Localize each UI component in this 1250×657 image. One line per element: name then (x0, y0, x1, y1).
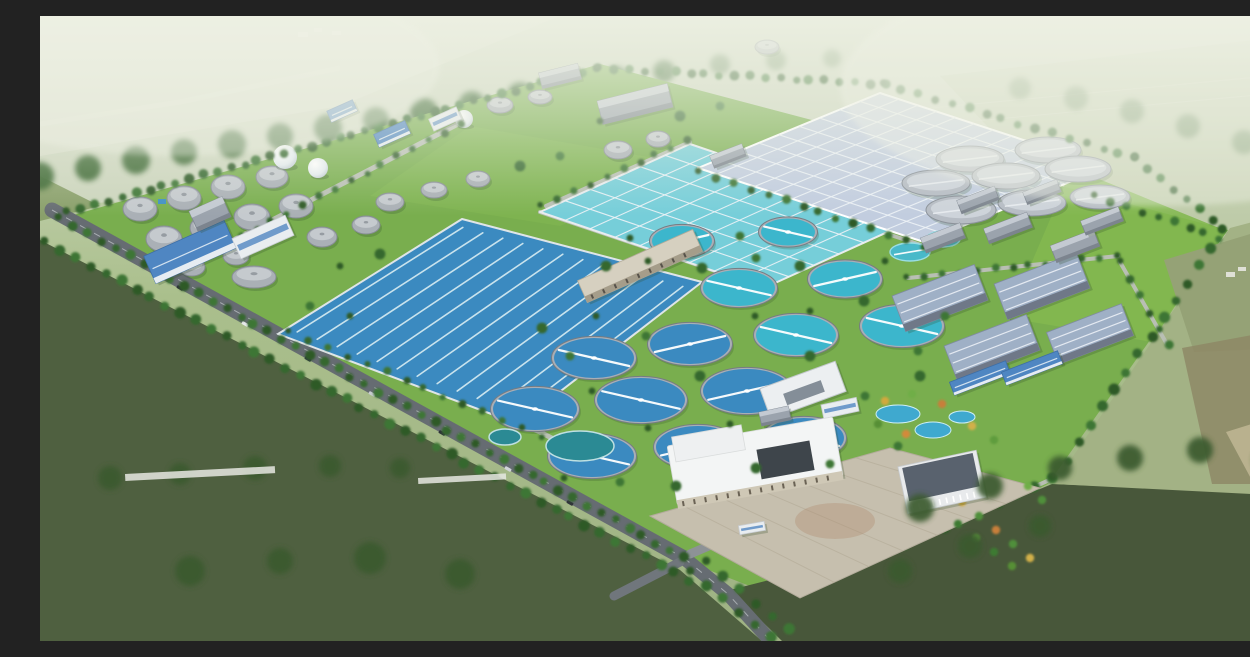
tree (344, 354, 351, 361)
tree (752, 254, 761, 263)
tree (335, 363, 344, 372)
tree (1183, 280, 1192, 289)
tree (400, 425, 410, 435)
tree (861, 392, 870, 401)
tree (686, 567, 694, 575)
tree (529, 471, 538, 480)
tree (514, 464, 523, 473)
tree (342, 393, 352, 403)
tree (702, 557, 710, 565)
tree (506, 482, 514, 490)
tree (1010, 264, 1017, 271)
tree-clump (98, 466, 122, 490)
tree (1126, 275, 1135, 284)
tree (645, 425, 652, 432)
garden-tree (908, 390, 916, 398)
tree (751, 463, 762, 474)
tree (458, 458, 469, 469)
tree (102, 269, 111, 278)
tree (1194, 260, 1204, 270)
tree (194, 287, 204, 297)
tree (1108, 384, 1120, 396)
tree (1159, 312, 1170, 323)
garden-pond (915, 422, 951, 438)
tree-clump (354, 542, 386, 574)
tree (520, 487, 531, 498)
tree (179, 281, 190, 292)
tree (625, 523, 635, 533)
tree (656, 559, 667, 570)
tree (431, 416, 441, 426)
tree (416, 433, 426, 443)
tree (471, 439, 479, 447)
tree (884, 231, 892, 239)
tree (597, 509, 605, 517)
tree (1132, 349, 1142, 359)
tree (418, 411, 426, 419)
tree (388, 395, 397, 404)
tree (222, 331, 231, 340)
tree (902, 236, 909, 243)
layer-haze (40, 16, 1250, 216)
tree (807, 308, 814, 315)
tree (610, 537, 620, 547)
tree (832, 215, 839, 222)
farm-building (1226, 272, 1235, 277)
tree (564, 512, 573, 521)
tree (320, 357, 330, 367)
aerial-plant-rendering (40, 16, 1250, 641)
tree (1097, 400, 1108, 411)
landscape-pond (546, 431, 614, 461)
tree (537, 323, 548, 334)
tree-clump (958, 534, 982, 558)
tree (403, 401, 412, 410)
tree (1117, 258, 1124, 265)
tree (645, 258, 652, 265)
tree (1205, 243, 1216, 254)
tree (627, 235, 634, 242)
tree (651, 540, 659, 548)
tree (553, 485, 563, 495)
garden-tree (881, 397, 889, 405)
tree (370, 410, 378, 418)
tree (1121, 368, 1130, 377)
tree (248, 346, 259, 357)
tree (160, 302, 169, 311)
tree (668, 566, 678, 576)
garden-tree (954, 520, 962, 528)
tree (1172, 297, 1181, 306)
tree (478, 407, 486, 415)
tree (360, 380, 368, 388)
tree (354, 403, 363, 412)
tree (305, 350, 315, 360)
tree (805, 351, 816, 362)
garden-tree (1009, 540, 1017, 548)
tree (310, 379, 322, 391)
tree (1156, 326, 1163, 333)
tree (280, 364, 290, 374)
tree (519, 424, 526, 431)
landscape-pond (489, 429, 521, 445)
tree (486, 449, 493, 456)
tank-vent (161, 233, 167, 237)
tree (1146, 310, 1154, 318)
clarifier-hub (736, 286, 742, 290)
tree (695, 371, 706, 382)
tree (768, 612, 777, 621)
tree (419, 384, 426, 391)
tree (751, 599, 760, 608)
tree (277, 335, 286, 344)
tree-clump (1187, 437, 1213, 463)
tree-clump (390, 458, 410, 478)
tree (642, 551, 650, 559)
rendering-canvas (40, 16, 1250, 641)
tree (539, 434, 545, 440)
clarifier-hub (532, 407, 538, 411)
garden-tree (968, 422, 976, 430)
tree (365, 361, 371, 367)
tree (752, 313, 759, 320)
tank-vent (364, 221, 368, 224)
tree (612, 515, 619, 522)
tree (626, 544, 635, 553)
tree-clump (445, 559, 475, 589)
tree (442, 426, 452, 436)
tree (190, 314, 201, 325)
tree (1096, 255, 1103, 262)
tree (83, 228, 92, 237)
tree-clump (1029, 515, 1051, 537)
garden-tree (990, 548, 998, 556)
tree (666, 547, 674, 555)
tree (717, 571, 728, 582)
farm-building (1238, 267, 1246, 271)
tree (446, 448, 458, 460)
tree (734, 608, 743, 617)
tree-clump (319, 455, 341, 477)
tree-clump (1048, 456, 1072, 480)
tree-clump (1117, 445, 1143, 471)
tree (1215, 236, 1222, 243)
tree (456, 433, 465, 442)
plaza-paving-accent (795, 503, 875, 539)
tree (345, 373, 353, 381)
tree-clump (888, 559, 912, 583)
tree (440, 394, 446, 400)
tree (324, 344, 331, 351)
tree (70, 252, 80, 262)
tree (285, 328, 291, 334)
tree (826, 460, 835, 469)
tank-vent (234, 252, 238, 255)
tree (347, 313, 354, 320)
tree (304, 337, 312, 345)
garden-tree (1008, 562, 1016, 570)
tree (326, 386, 337, 397)
tree (671, 481, 682, 492)
tree (432, 443, 441, 452)
tree (1075, 437, 1084, 446)
tree (736, 232, 745, 241)
tree (337, 263, 344, 270)
tree (209, 297, 218, 306)
garden-tree (874, 420, 882, 428)
tree (292, 342, 300, 350)
tree (734, 584, 744, 594)
tree (1187, 224, 1195, 232)
tree (642, 332, 651, 341)
tree (601, 261, 612, 272)
tree (112, 244, 120, 252)
tree (1209, 216, 1218, 225)
tree (697, 263, 708, 274)
tree (903, 274, 909, 280)
tree (578, 520, 589, 531)
tree (589, 388, 596, 395)
tree (68, 221, 78, 231)
tree (1165, 340, 1174, 349)
tree (920, 273, 928, 281)
tree (238, 341, 246, 349)
tree-clump (267, 548, 293, 574)
tree (247, 319, 257, 329)
tree-clump (977, 473, 1003, 499)
tree (306, 302, 315, 311)
tree (718, 593, 728, 603)
tree (914, 347, 923, 356)
tree (54, 245, 65, 256)
tree (174, 307, 186, 319)
garden-pond (949, 411, 975, 423)
tree (561, 475, 568, 482)
tree (458, 400, 466, 408)
tree (264, 353, 274, 363)
tree-clump (906, 494, 934, 522)
tree (915, 371, 926, 382)
tree (727, 421, 734, 428)
tree (568, 492, 578, 502)
garden-tree (1026, 554, 1034, 562)
clarifier-hub (785, 230, 791, 234)
tree (238, 314, 246, 322)
tree (1170, 216, 1179, 225)
garden-tree (1024, 482, 1032, 490)
tree (86, 262, 95, 271)
tree (679, 552, 689, 562)
garden-tree (975, 512, 983, 520)
garden-tree (938, 400, 946, 408)
tree (848, 219, 857, 228)
tree (701, 580, 712, 591)
garden-pond (876, 405, 920, 423)
tree (206, 324, 216, 334)
clarifier-hub (793, 333, 799, 337)
tree (1024, 261, 1031, 268)
tree (593, 313, 600, 320)
tree (1199, 228, 1207, 236)
tree (125, 249, 135, 259)
tree (1218, 225, 1226, 233)
clarifier-hub (842, 277, 848, 281)
tree (536, 497, 546, 507)
clarifier-hub (591, 356, 597, 360)
tree (223, 304, 231, 312)
tree (540, 477, 548, 485)
tree (616, 478, 625, 487)
tree (941, 312, 950, 321)
tree (1086, 420, 1096, 430)
tree (795, 261, 806, 272)
tree (474, 465, 484, 475)
garden-tree (992, 526, 1000, 534)
tree (992, 264, 1000, 272)
tree (403, 377, 410, 384)
tank-vent (250, 272, 257, 275)
tree (684, 577, 693, 586)
tree (373, 388, 383, 398)
clarifier-hub (744, 389, 750, 393)
tank-vent (320, 233, 325, 236)
tree (296, 371, 305, 380)
clarifier-hub (687, 342, 693, 346)
tree (866, 223, 875, 232)
tree (583, 502, 592, 511)
tree (566, 352, 575, 361)
tree (594, 527, 605, 538)
tree (132, 284, 143, 295)
tree (636, 530, 645, 539)
garden-tree (1038, 496, 1046, 504)
tree (262, 325, 271, 334)
tree (375, 249, 386, 260)
garden-tree (990, 436, 998, 444)
tree (859, 296, 870, 307)
tree (97, 238, 105, 246)
tree (383, 367, 391, 375)
tree (552, 505, 561, 514)
tree (882, 258, 889, 265)
tree (1148, 332, 1159, 343)
tree (1136, 291, 1144, 299)
tree (499, 454, 509, 464)
tree (499, 417, 506, 424)
tree (116, 274, 127, 285)
garden-tree (902, 430, 910, 438)
tree (894, 442, 903, 451)
tree (384, 418, 395, 429)
tree-clump (175, 556, 205, 586)
clarifier-hub (638, 398, 644, 402)
tree (144, 292, 154, 302)
tree (40, 237, 48, 245)
